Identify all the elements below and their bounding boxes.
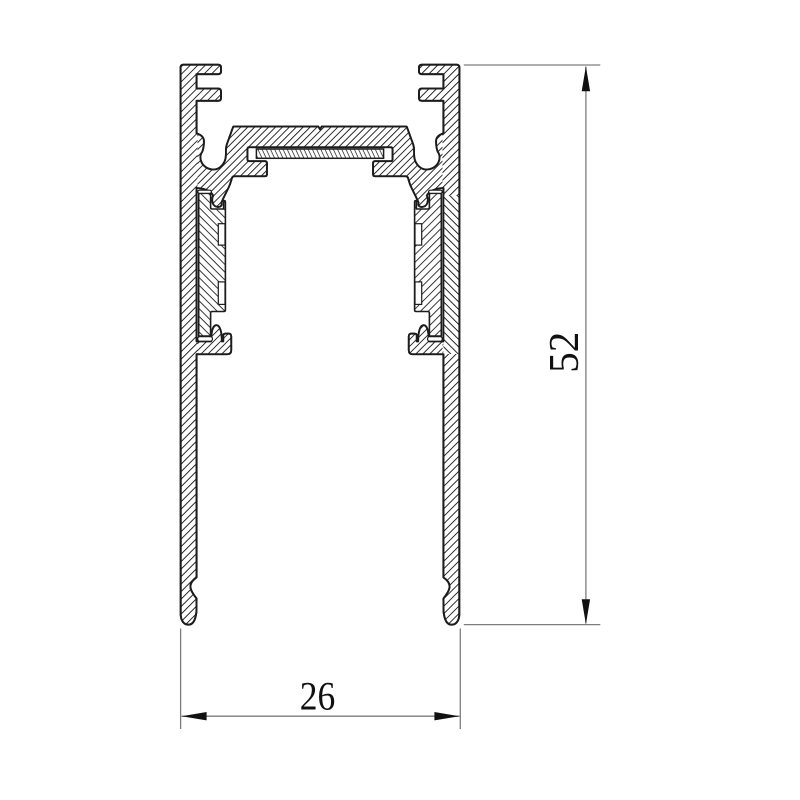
svg-text:26: 26	[300, 674, 336, 719]
svg-text:52: 52	[542, 332, 588, 373]
